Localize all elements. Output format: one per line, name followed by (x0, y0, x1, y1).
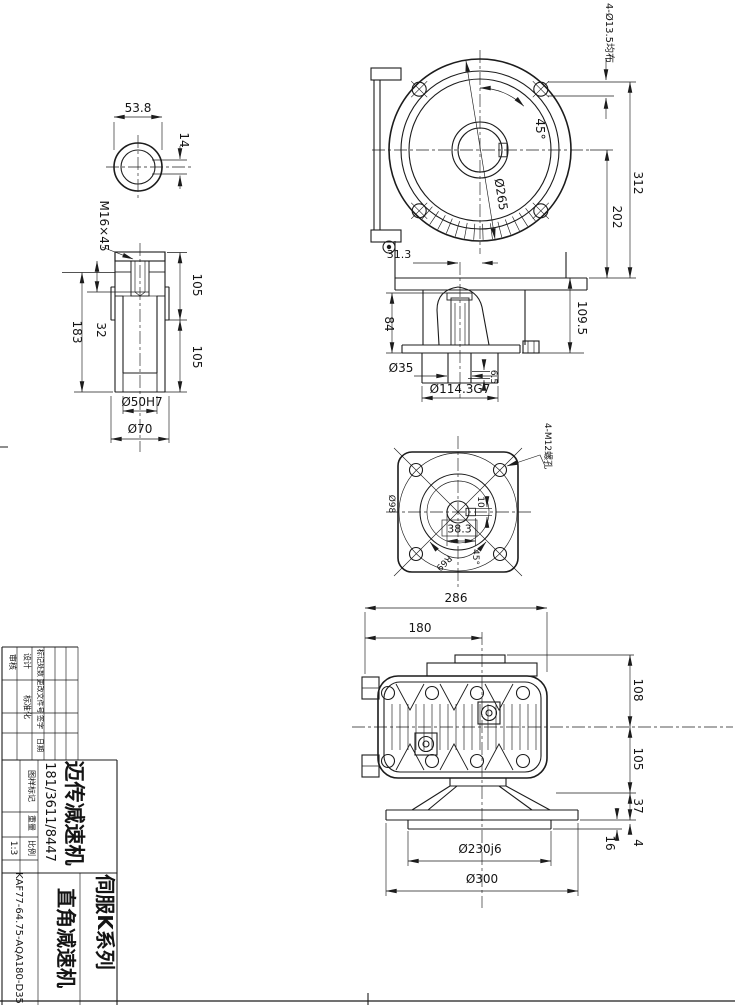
dim-bush-key: 32 (94, 322, 108, 337)
dim-bush-lower: 105 (190, 346, 204, 369)
dim-side-h4: 4 (631, 839, 645, 847)
dim-side-flange: Ø300 (466, 872, 498, 886)
dim-bush-len: 183 (70, 321, 84, 344)
dim-bush-od: Ø70 (128, 422, 153, 436)
label-plan-tapped: 4-M12螺孔 (542, 423, 553, 469)
dim-front-cone: 84 (382, 316, 396, 331)
dim-side-width: 286 (445, 591, 468, 605)
dim-front-shaft: Ø35 (389, 361, 414, 375)
dim-front-height-total: 312 (631, 172, 645, 195)
tb-model: KAF77-64.75-AQA180-D35 (13, 872, 24, 1004)
tb-label-change-no: 更改文件号 (36, 679, 45, 714)
dim-side-h2: 105 (631, 748, 645, 771)
tb-serial: 181/3611/8447 (42, 762, 57, 862)
dim-side-h1: 108 (631, 679, 645, 702)
title-block: 审核 设计 标准化 标记处数 更改文件号 签字 日期 图样标记 重量 比例 1:… (2, 647, 117, 1005)
dim-ring-key: 14 (177, 132, 191, 147)
tb-company: 迈传减速机 (62, 761, 86, 866)
dim-plan-key-box: 38.3 (447, 523, 472, 536)
dim-plan-dia: Ø98 (386, 495, 397, 514)
dim-plan-key-width: 10 (475, 496, 485, 508)
dim-front-angle: 45° (533, 118, 547, 139)
dim-bush-upper: 105 (190, 274, 204, 297)
dim-side-h5: 16 (603, 835, 617, 850)
view-gearbox-plan: 38.3 10 4-M12螺孔 Ø98 R69 45° (386, 423, 553, 590)
tb-product: 直角减速机 (54, 888, 78, 988)
dim-front-bolt-circle: Ø265 (492, 177, 511, 211)
dim-front-offset: 31.3 (387, 248, 412, 261)
drawing-canvas: 53.8 14 M16×45 183 32 105 105 Ø50H7 Ø70 (0, 0, 735, 1005)
label-front-holes: 4-Ø13.5均布 (603, 3, 615, 63)
view-bushing: M16×45 183 32 105 105 Ø50H7 Ø70 (62, 201, 204, 452)
tb-label-drawing-mark: 图样标记 (27, 770, 37, 802)
dim-plan-angle: 45° (470, 549, 480, 565)
dim-ring-width: 53.8 (125, 101, 152, 115)
tb-label-sign: 签字 (36, 715, 45, 729)
view-gearbox-front: 31.3 84 109.5 202 312 4-Ø13.5均布 45° Ø265… (371, 3, 645, 402)
tb-label-audit: 审核 (8, 654, 18, 670)
tb-label-design: 设计 (23, 653, 33, 669)
tb-scale-value: 1:3 (8, 841, 18, 855)
dim-side-h3: 37 (631, 798, 645, 813)
tb-label-weight: 重量 (27, 815, 37, 831)
tb-series: 伺服K系列 (93, 873, 117, 970)
dim-front-spigot: Ø114.3G7 (430, 382, 491, 396)
view-gearbox-side: 286 180 108 105 37 4 16 Ø230j6 Ø300 (352, 591, 733, 908)
dim-side-axis: 180 (409, 621, 432, 635)
view-ring-section: 53.8 14 (106, 101, 192, 199)
tb-label-date: 日期 (36, 738, 44, 752)
output-cone (437, 287, 489, 345)
drawing-sheet: 53.8 14 M16×45 183 32 105 105 Ø50H7 Ø70 (0, 0, 735, 1005)
dim-front-base: 109.5 (575, 301, 589, 335)
cooling-fins (422, 207, 535, 240)
tb-label-mark: 标记处数 (36, 649, 45, 677)
tb-label-scale: 比例 (27, 840, 37, 856)
dim-side-spigot: Ø230j6 (458, 842, 501, 856)
dim-front-height-center: 202 (610, 206, 624, 229)
label-thread: M16×45 (97, 201, 111, 252)
dim-bush-bore: Ø50H7 (121, 395, 162, 409)
tb-label-standard: 标准化 (23, 695, 33, 719)
dim-plan-radius: R69 (433, 553, 453, 573)
